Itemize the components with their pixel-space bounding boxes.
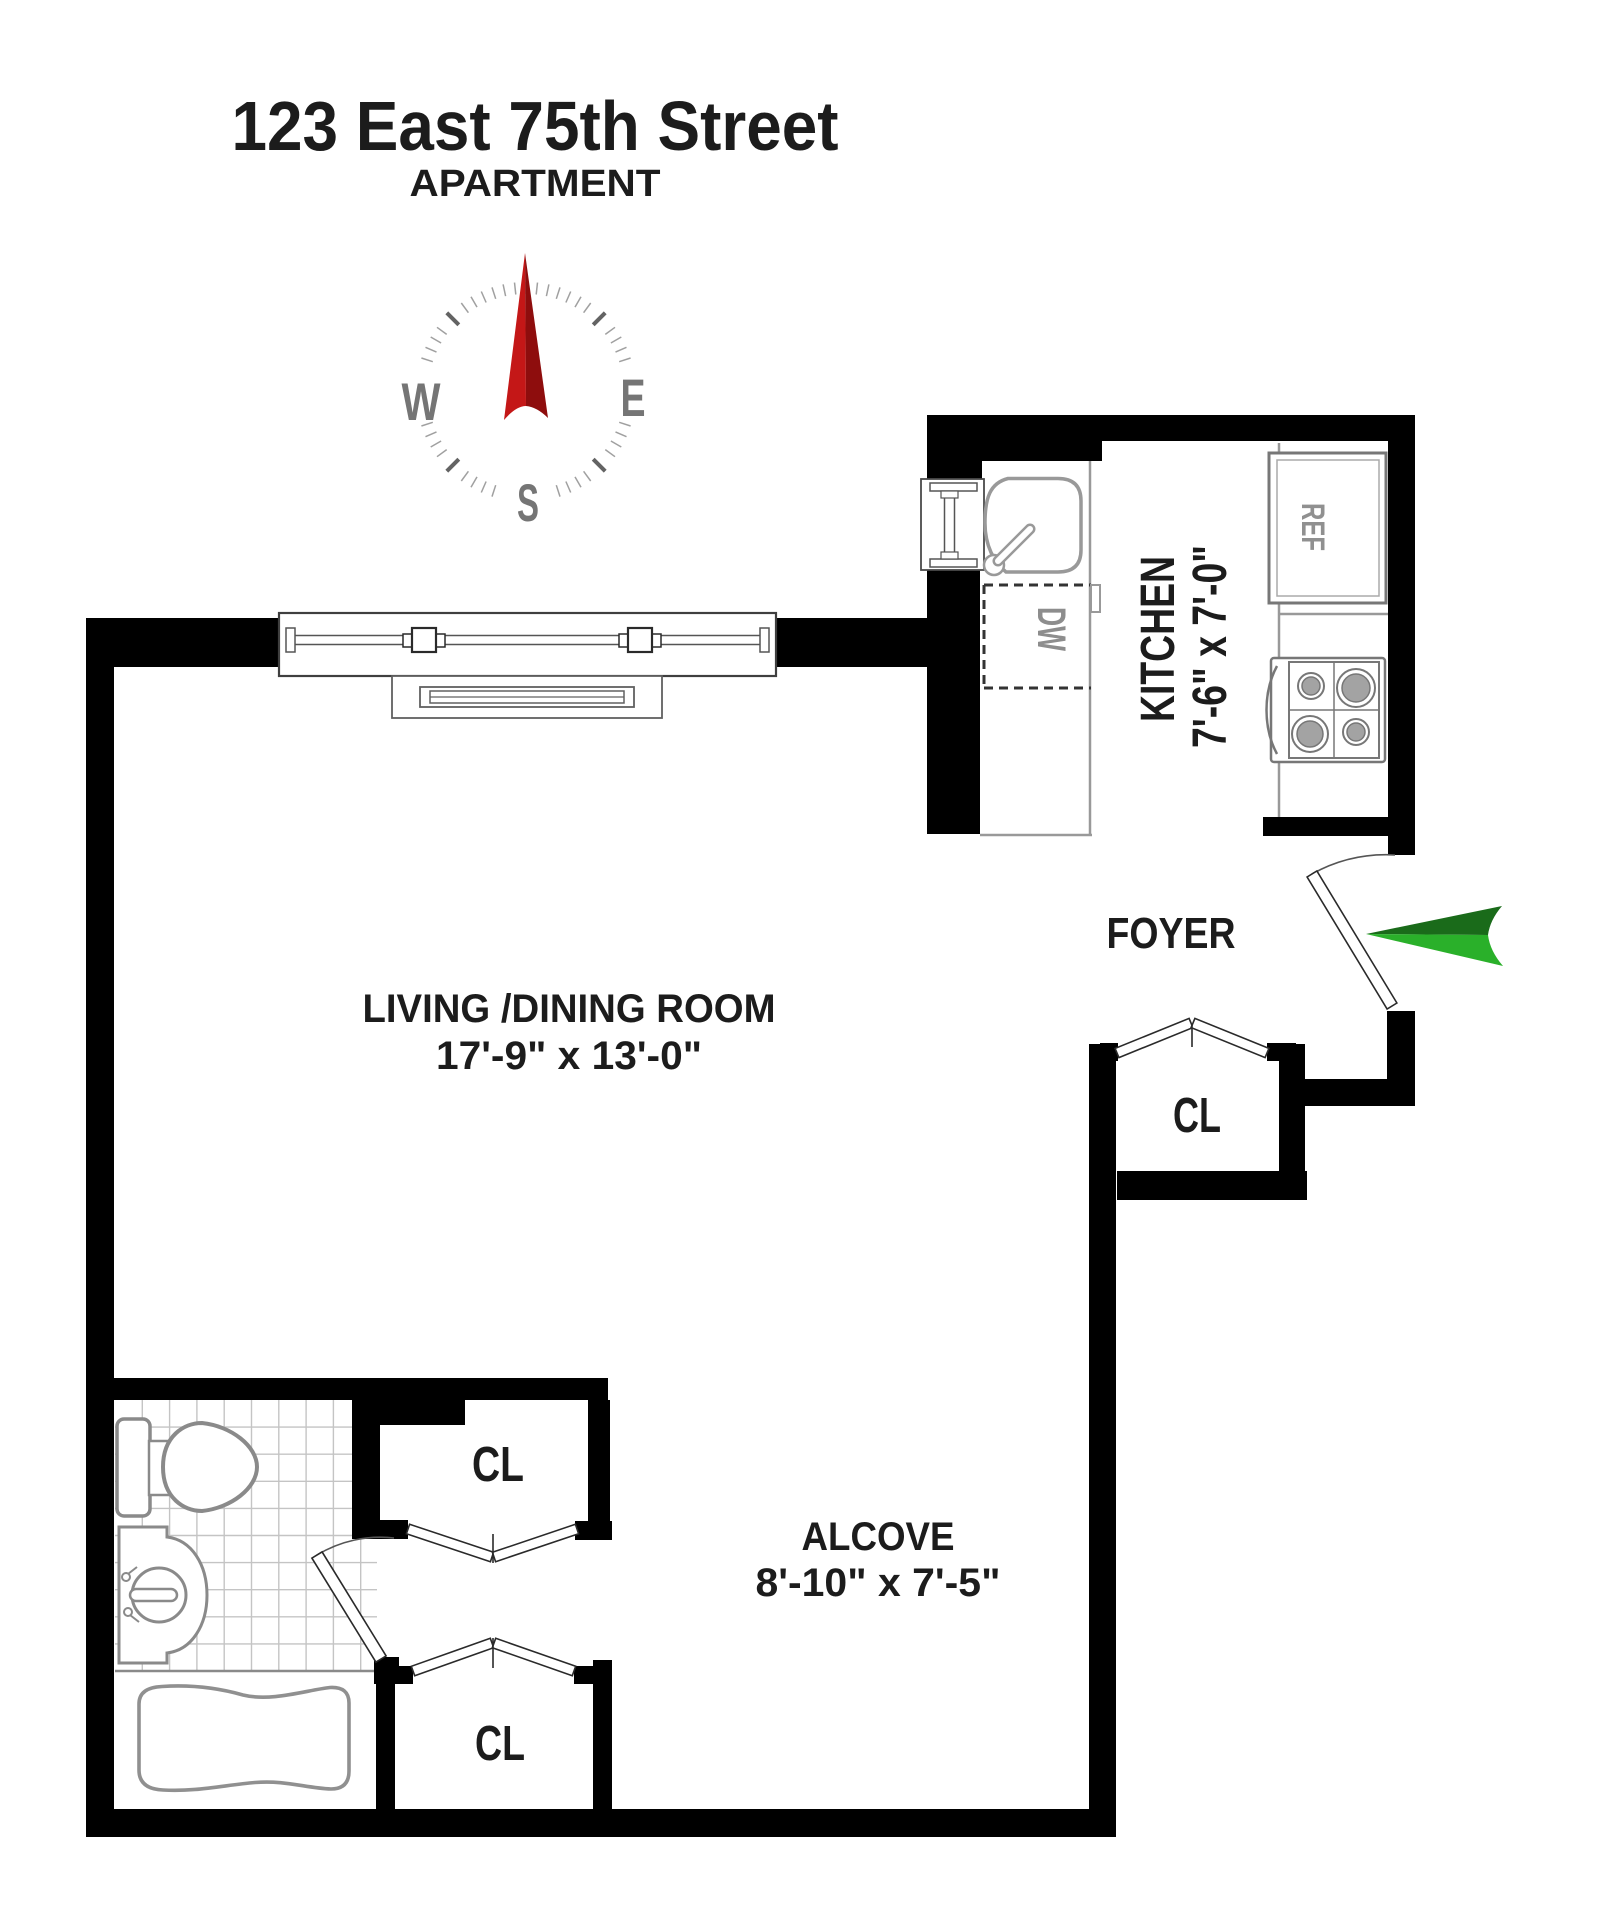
svg-text:ALCOVE: ALCOVE (802, 1515, 955, 1559)
svg-text:17'-9" x 13'-0": 17'-9" x 13'-0" (436, 1034, 702, 1078)
svg-text:CL: CL (475, 1717, 525, 1771)
svg-text:7'-6" x 7'-0": 7'-6" x 7'-0" (1184, 545, 1237, 748)
svg-text:CL: CL (472, 1438, 524, 1492)
svg-text:CL: CL (1173, 1089, 1221, 1143)
svg-text:123 East 75th Street: 123 East 75th Street (232, 87, 839, 165)
svg-text:DW: DW (1029, 607, 1073, 651)
svg-text:S: S (517, 474, 539, 533)
svg-text:E: E (621, 369, 646, 428)
svg-text:APARTMENT: APARTMENT (410, 163, 661, 205)
svg-text:LIVING /DINING ROOM: LIVING /DINING ROOM (363, 987, 776, 1031)
svg-text:REF: REF (1295, 503, 1331, 551)
svg-text:KITCHEN: KITCHEN (1132, 556, 1185, 722)
svg-text:FOYER: FOYER (1107, 909, 1236, 958)
svg-text:8'-10" x 7'-5": 8'-10" x 7'-5" (756, 1561, 1001, 1605)
svg-text:W: W (402, 373, 441, 432)
